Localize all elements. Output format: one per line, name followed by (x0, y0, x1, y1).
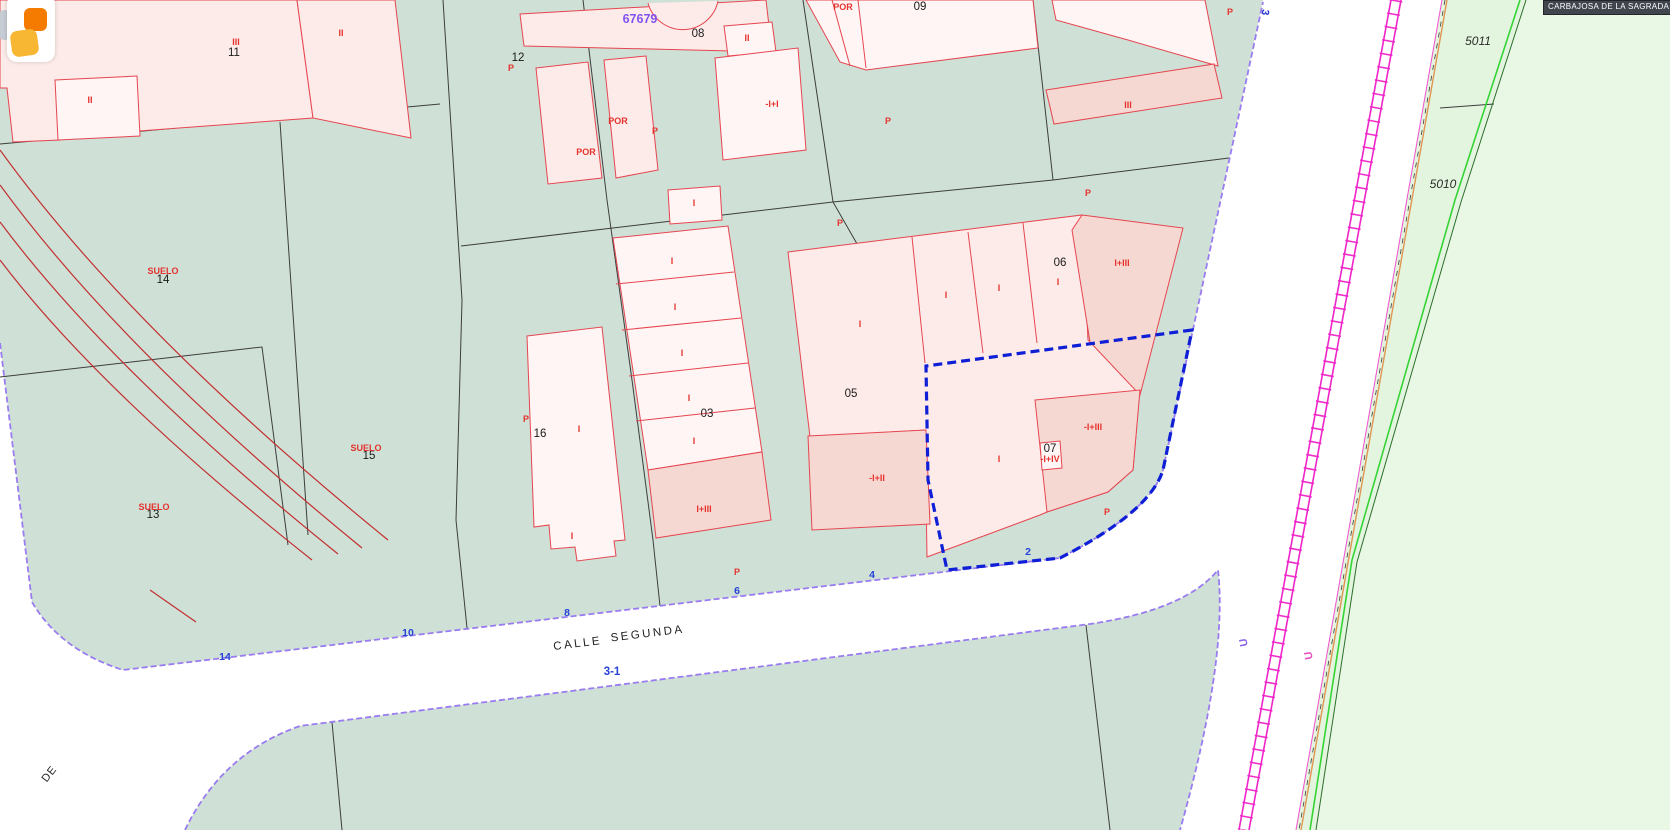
rural-area[interactable] (1296, 0, 1670, 830)
map-label-i: I (945, 290, 948, 300)
map-label-i: I (693, 198, 696, 208)
map-label-i: I (688, 393, 691, 403)
map-label-iii: III (1124, 100, 1132, 110)
map-label-ii: II (338, 28, 343, 38)
map-label-por: POR (576, 147, 596, 157)
map-label-3: 3 (1259, 9, 1271, 16)
map-label-suelo: SUELO (350, 443, 381, 453)
map-label-segunda: SEGUNDA (610, 624, 685, 645)
map-controls-card (0, 0, 62, 66)
map-label-5010: 5010 (1430, 177, 1457, 191)
map-label-ii: II (744, 33, 749, 43)
map-label-5011: 5011 (1465, 34, 1491, 48)
municipality-label: CARBAJOSA DE LA SAGRADA (1543, 0, 1670, 15)
map-label-03: 03 (701, 408, 714, 420)
map-label-09: 09 (914, 1, 927, 13)
map-label-8: 8 (564, 607, 570, 619)
map-label-i: I (859, 319, 862, 329)
map-label--i-ii: -I+II (869, 473, 885, 483)
map-label-6: 6 (734, 585, 740, 597)
map-label-p: P (734, 567, 740, 577)
map-label-67679: 67679 (623, 12, 658, 26)
map-label-p: P (885, 116, 891, 126)
orange-layer-icon[interactable] (24, 8, 47, 31)
map-label-i: I (578, 424, 581, 434)
map-label-suelo: SUELO (147, 266, 178, 276)
map-label-4: 4 (869, 569, 875, 581)
map-label-i: I (671, 256, 674, 266)
yellow-layer-icon[interactable] (9, 28, 39, 58)
map-label-u: U (1302, 651, 1315, 661)
map-label-suelo: SUELO (138, 502, 169, 512)
map-label-i: I (998, 283, 1001, 293)
map-label-i: I (693, 436, 696, 446)
map-label-p: P (523, 414, 529, 424)
map-label-p: P (837, 218, 843, 228)
building-II-box[interactable] (724, 22, 776, 56)
map-label-14: 14 (219, 651, 231, 663)
map-label-p: P (652, 126, 658, 136)
map-label-10: 10 (402, 627, 414, 639)
map-label-p: P (508, 63, 514, 73)
map-label-por: POR (833, 2, 853, 12)
map-label-iii: III (232, 37, 240, 47)
map-label-08: 08 (692, 28, 705, 40)
map-canvas[interactable]: 1112080903050607161415135011501067679III… (0, 0, 1670, 830)
map-label-i: I (674, 302, 677, 312)
map-label-de: DE (40, 764, 60, 785)
map-label-3-1: 3-1 (604, 666, 621, 678)
map-label--i-iv: -I+IV (1040, 454, 1059, 464)
map-label-p: P (1085, 188, 1091, 198)
map-label-11: 11 (228, 47, 240, 59)
map-label-i: I (571, 531, 574, 541)
map-label-2: 2 (1025, 546, 1031, 558)
map-label--i-i: -I+I (765, 99, 778, 109)
map-label-06: 06 (1054, 257, 1067, 269)
map-label-i-iii: I+III (1114, 258, 1129, 268)
map-label-i-iii: I+III (696, 504, 711, 514)
map-label-16: 16 (534, 428, 547, 440)
map-label-i: I (681, 348, 684, 358)
building-strip-II[interactable] (297, 0, 411, 138)
map-label-05: 05 (845, 388, 858, 400)
map-label-p: P (1227, 7, 1233, 17)
map-label-p: P (1104, 507, 1110, 517)
building-minus-I-plus-I[interactable] (715, 48, 806, 160)
map-label--i-iii: -I+III (1084, 422, 1102, 432)
map-label-calle: CALLE (553, 635, 603, 653)
map-label-ii: II (87, 95, 92, 105)
map-label-i: I (998, 454, 1001, 464)
building-II-inner[interactable] (55, 76, 140, 140)
map-label-por: POR (608, 116, 628, 126)
map-label-i: I (1057, 277, 1060, 287)
map-label-u: U (1237, 638, 1250, 648)
cadastral-map-svg[interactable]: 1112080903050607161415135011501067679III… (0, 0, 1670, 830)
